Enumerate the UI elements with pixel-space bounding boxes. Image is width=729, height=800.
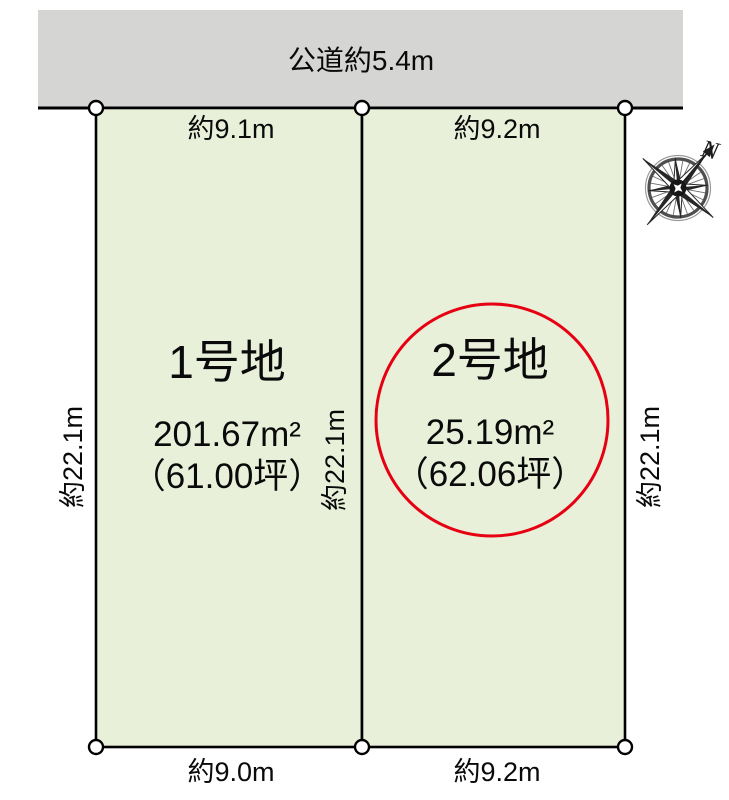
lot2-tsubo: （62.06坪） — [394, 455, 587, 494]
lot1-top-dimension: 約9.1m — [187, 114, 274, 144]
marker-bottom-left — [89, 740, 103, 754]
lot1-name: 1号地 — [168, 336, 286, 388]
marker-top-right — [618, 101, 632, 115]
marker-bottom-middle — [355, 740, 369, 754]
lot2-area: 25.19m² — [426, 413, 554, 452]
lot2-top-dimension: 約9.2m — [453, 114, 540, 144]
lot1-tsubo: （61.00坪） — [131, 457, 324, 496]
plot-layout-canvas: 公道約5.4m 約9.1m 約9.2m 約9.0m 約9.2m 約22.1m 約… — [0, 0, 729, 800]
left-side-dimension: 約22.1m — [58, 406, 88, 508]
compass-rose-icon — [612, 115, 729, 255]
lot2-bottom-dimension: 約9.2m — [453, 757, 540, 787]
land-plot-diagram: 公道約5.4m 約9.1m 約9.2m 約9.0m 約9.2m 約22.1m 約… — [0, 0, 729, 800]
right-side-dimension: 約22.1m — [635, 406, 665, 508]
lot2-name: 2号地 — [431, 334, 549, 386]
road-label: 公道約5.4m — [288, 45, 434, 76]
marker-top-left — [89, 101, 103, 115]
marker-top-middle — [355, 101, 369, 115]
lot1-area: 201.67m² — [153, 415, 301, 454]
marker-bottom-right — [618, 740, 632, 754]
middle-side-dimension: 約22.1m — [320, 409, 350, 511]
compass-north-label: N — [698, 135, 723, 166]
lot1-bottom-dimension: 約9.0m — [187, 757, 274, 787]
